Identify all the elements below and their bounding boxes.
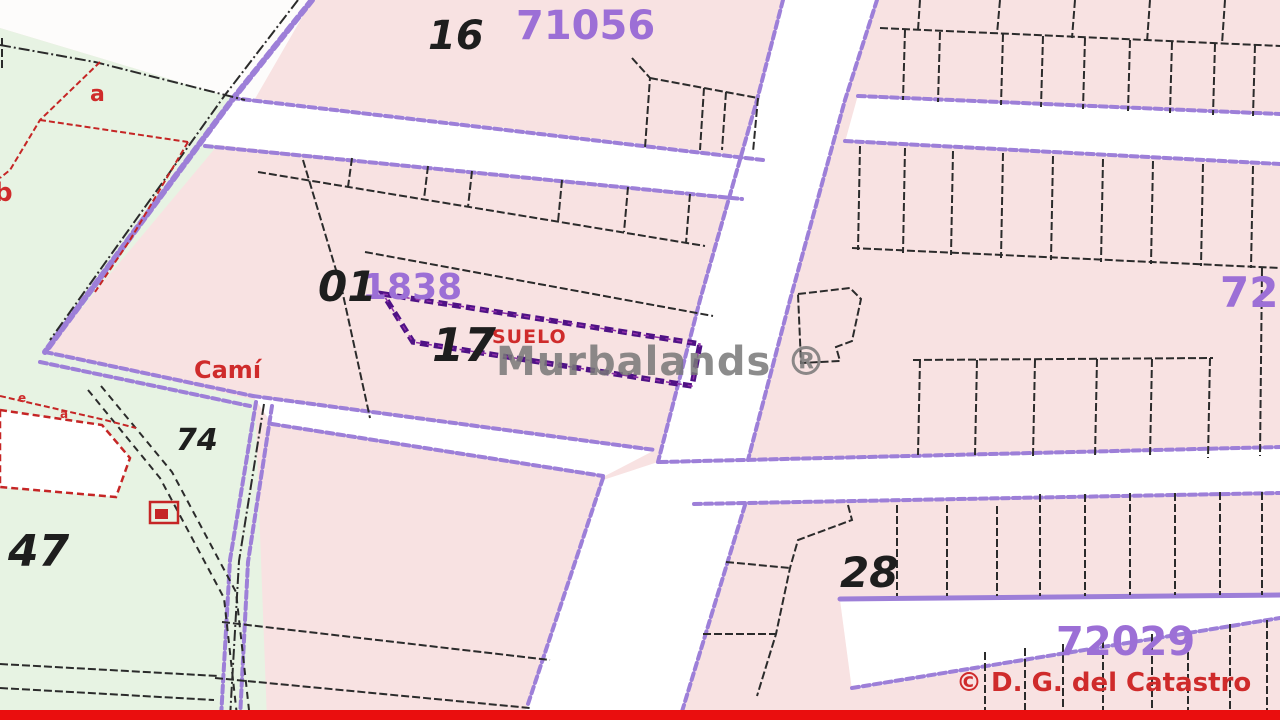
footer-red-bar [0, 710, 1280, 720]
cadastral-map-canvas[interactable] [0, 0, 1280, 720]
red-building-icon-fill [155, 509, 168, 519]
region-fills [0, 0, 1280, 720]
cadastral-map-viewport: 1838 16 71056 01 17 SUELO Murbalands ® C… [0, 0, 1280, 720]
